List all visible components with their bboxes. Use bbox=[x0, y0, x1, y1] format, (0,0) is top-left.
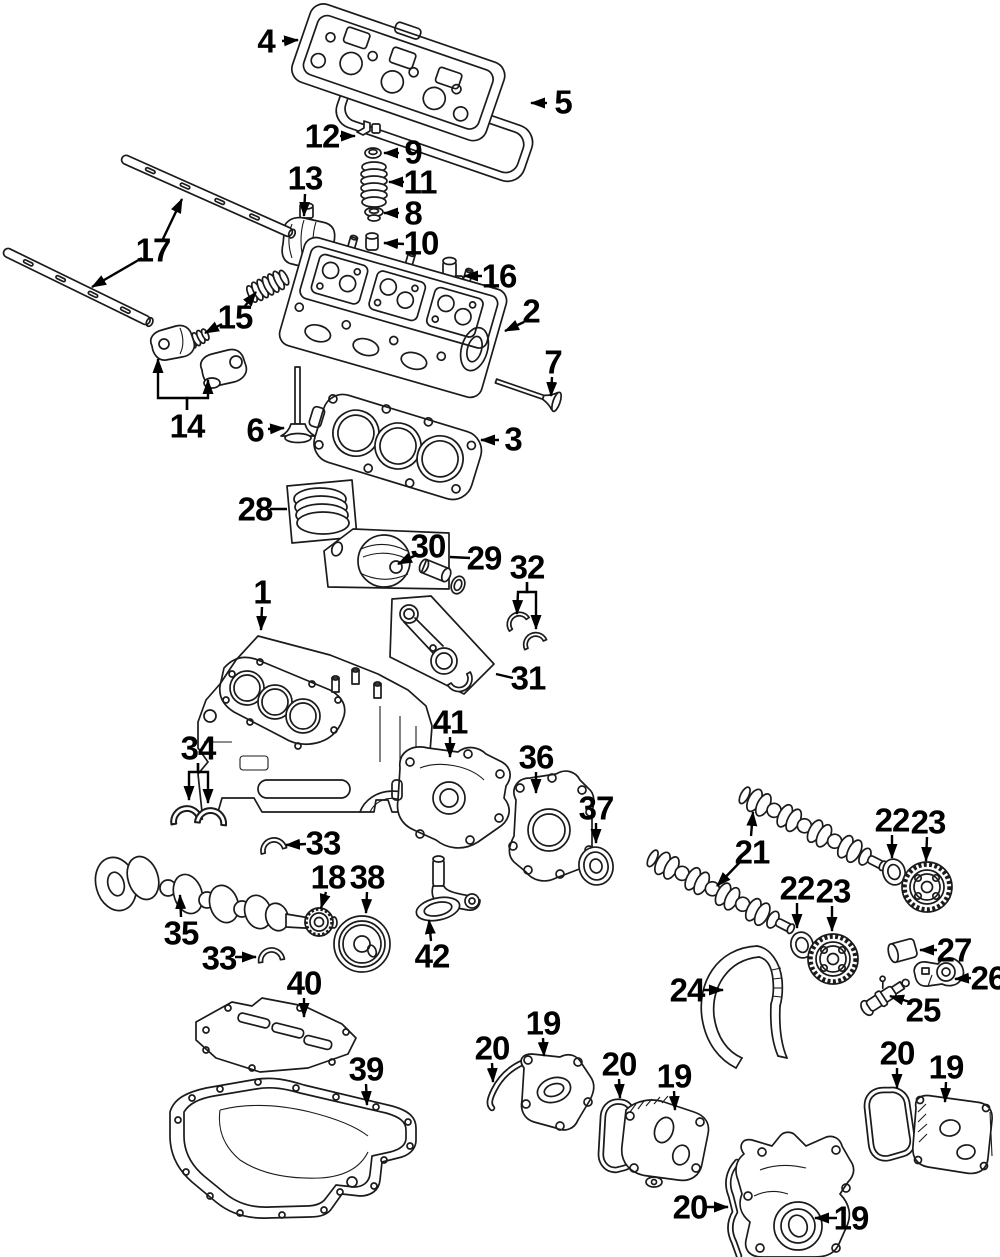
part-number-4: 4 bbox=[257, 23, 276, 60]
part-number-30: 30 bbox=[411, 528, 446, 565]
part-29-piston-kit bbox=[324, 529, 467, 596]
part-number-17: 17 bbox=[136, 232, 171, 269]
leader-line-33 bbox=[286, 844, 306, 845]
part-18-timing-sprocket bbox=[305, 908, 333, 936]
part-number-14: 14 bbox=[170, 408, 206, 445]
part-number-25: 25 bbox=[906, 992, 941, 1029]
leader-line-23 bbox=[926, 837, 927, 861]
part-number-34: 34 bbox=[181, 730, 217, 767]
part-number-15: 15 bbox=[218, 299, 253, 336]
part-8-spring-seat bbox=[365, 208, 383, 222]
part-number-37: 37 bbox=[579, 790, 614, 827]
leader-line-10 bbox=[384, 243, 404, 244]
part-number-39: 39 bbox=[349, 1051, 384, 1088]
part-10-valve-guide bbox=[366, 233, 378, 250]
leader-line-13 bbox=[304, 194, 305, 216]
part-number-19: 19 bbox=[526, 1005, 561, 1042]
part-number-12: 12 bbox=[305, 118, 340, 155]
part-number-29: 29 bbox=[467, 540, 502, 577]
part-number-23: 23 bbox=[911, 804, 946, 841]
part-23-cam-sprocket-lower bbox=[808, 934, 858, 984]
part-number-20: 20 bbox=[880, 1035, 915, 1072]
part-number-38: 38 bbox=[350, 859, 385, 896]
part-number-2: 2 bbox=[522, 293, 540, 330]
part-number-1: 1 bbox=[253, 574, 271, 611]
leader-line-6 bbox=[268, 428, 284, 429]
part-number-3: 3 bbox=[504, 421, 522, 458]
part-number-10: 10 bbox=[404, 225, 439, 262]
part-23-cam-sprocket-upper bbox=[902, 862, 952, 912]
part-number-32: 32 bbox=[510, 549, 545, 586]
part-number-18: 18 bbox=[311, 859, 346, 896]
diagram-svg: 4512911810131617151462732830293231141343… bbox=[0, 0, 1000, 1257]
part-number-26: 26 bbox=[971, 960, 1000, 997]
part-number-6: 6 bbox=[246, 412, 264, 449]
part-number-35: 35 bbox=[164, 915, 199, 952]
background bbox=[0, 0, 1000, 1257]
part-number-20: 20 bbox=[673, 1189, 708, 1226]
part-number-19: 19 bbox=[929, 1049, 964, 1086]
part-number-5: 5 bbox=[554, 84, 572, 121]
part-number-20: 20 bbox=[475, 1030, 510, 1067]
leader-line-4 bbox=[282, 40, 298, 41]
part-9-valve-seal bbox=[365, 148, 381, 158]
part-number-19: 19 bbox=[657, 1058, 692, 1095]
part-number-22: 22 bbox=[875, 802, 910, 839]
part-19-cover-c bbox=[913, 1096, 992, 1174]
part-number-33: 33 bbox=[202, 940, 237, 977]
part-number-40: 40 bbox=[287, 965, 322, 1002]
part-number-16: 16 bbox=[482, 258, 517, 295]
part-number-42: 42 bbox=[415, 938, 450, 975]
leader-line-26 bbox=[955, 978, 971, 979]
part-number-13: 13 bbox=[288, 160, 323, 197]
part-number-28: 28 bbox=[238, 491, 273, 528]
part-number-20: 20 bbox=[602, 1046, 637, 1083]
part-number-33: 33 bbox=[306, 825, 341, 862]
part-number-21: 21 bbox=[735, 834, 770, 871]
part-number-31: 31 bbox=[511, 660, 546, 697]
part-number-24: 24 bbox=[670, 972, 706, 1009]
part-number-27: 27 bbox=[937, 932, 972, 969]
engine-parts-diagram: 4512911810131617151462732830293231141343… bbox=[0, 0, 1000, 1257]
part-11-valve-spring bbox=[361, 162, 387, 207]
part-number-7: 7 bbox=[544, 344, 561, 381]
part-number-19: 19 bbox=[834, 1200, 869, 1237]
part-19-cover-lower bbox=[736, 1132, 854, 1257]
part-number-22: 22 bbox=[780, 870, 815, 907]
part-number-36: 36 bbox=[519, 739, 554, 776]
part-38-crank-pulley bbox=[334, 916, 390, 972]
part-number-23: 23 bbox=[816, 873, 851, 910]
part-number-41: 41 bbox=[433, 704, 468, 741]
